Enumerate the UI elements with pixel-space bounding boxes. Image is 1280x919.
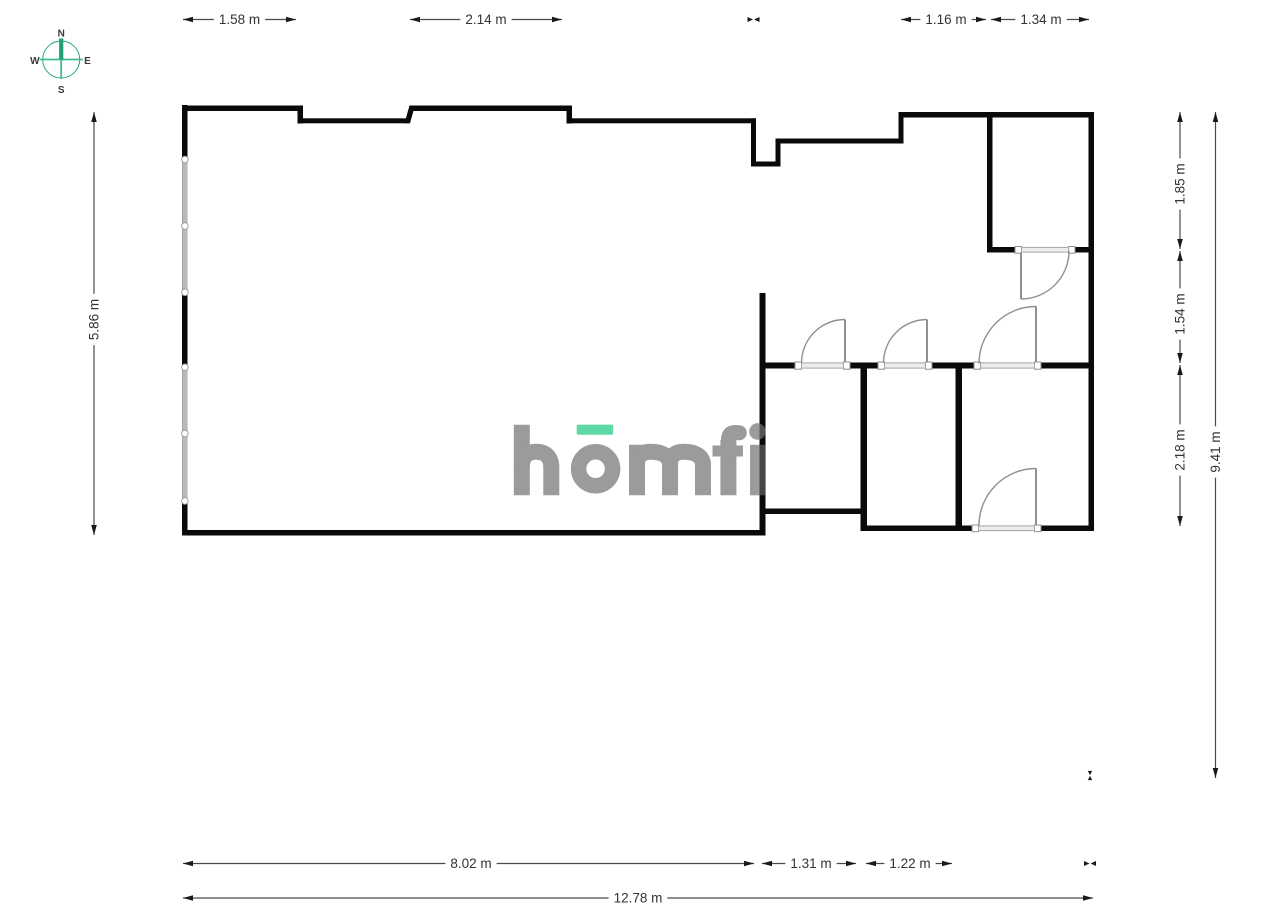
svg-text:1.54 m: 1.54 m [1173, 293, 1188, 334]
svg-text:2.18 m: 2.18 m [1173, 429, 1188, 470]
svg-text:1.58 m: 1.58 m [219, 12, 260, 27]
svg-text:N: N [58, 29, 65, 40]
svg-text:1.85 m: 1.85 m [1173, 163, 1188, 204]
svg-text:S: S [58, 85, 65, 96]
svg-text:W: W [30, 56, 40, 67]
svg-text:1.31 m: 1.31 m [790, 856, 831, 871]
svg-text:E: E [84, 56, 91, 67]
svg-text:9.41 m: 9.41 m [1208, 431, 1223, 472]
svg-text:2.14 m: 2.14 m [465, 12, 506, 27]
svg-text:1.34 m: 1.34 m [1020, 12, 1061, 27]
svg-text:1.16 m: 1.16 m [925, 12, 966, 27]
svg-text:5.86 m: 5.86 m [87, 299, 102, 340]
svg-text:8.02 m: 8.02 m [450, 856, 491, 871]
svg-text:12.78 m: 12.78 m [614, 891, 663, 906]
svg-text:1.22 m: 1.22 m [889, 856, 930, 871]
